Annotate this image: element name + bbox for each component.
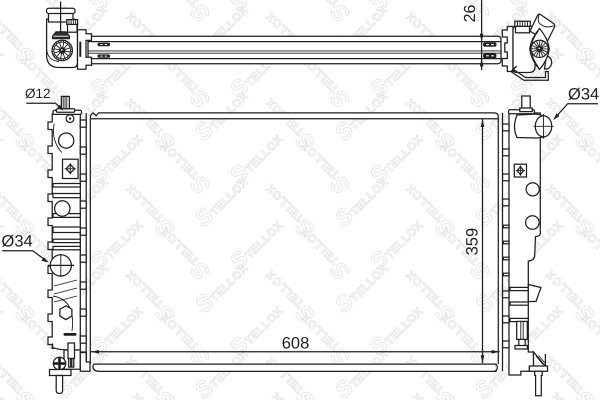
- svg-text:Ø12: Ø12: [25, 86, 51, 101]
- svg-text:359: 359: [464, 228, 482, 256]
- svg-text:Ø34: Ø34: [2, 233, 33, 251]
- svg-text:26: 26: [462, 5, 479, 23]
- svg-text:608: 608: [282, 335, 310, 353]
- svg-text:Ø34: Ø34: [568, 86, 599, 104]
